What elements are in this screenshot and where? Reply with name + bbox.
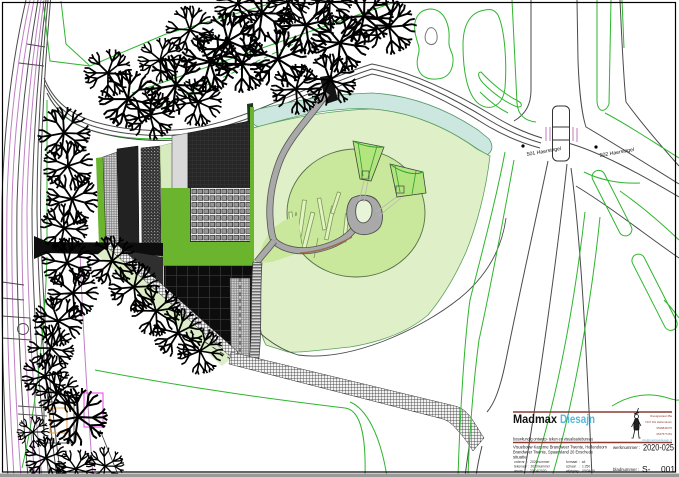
svg-text:ordernr : 2020nummer: ordernr : 2020nummer <box>514 460 550 464</box>
svg-text:formaat : a4: formaat : a4 <box>566 460 586 464</box>
svg-text:situatie: situatie <box>513 455 527 460</box>
svg-text:7447 DG Hellendoorn: 7447 DG Hellendoorn <box>645 420 672 424</box>
svg-text:info@madmaxdiesajn.nl: info@madmaxdiesajn.nl <box>642 438 672 442</box>
svg-text:Diesajn: Diesajn <box>560 412 595 426</box>
svg-text:tekenaar : 2020nummer: tekenaar : 2020nummer <box>514 465 551 469</box>
svg-text:0647577251: 0647577251 <box>656 432 672 436</box>
svg-text:bladnummer :: bladnummer : <box>613 467 639 472</box>
svg-text:werknummer :: werknummer : <box>613 445 640 450</box>
svg-text:0548834075: 0548834075 <box>656 426 672 430</box>
svg-text:bouwkundig ontwerp- teken en v: bouwkundig ontwerp- teken en visualisati… <box>513 437 594 442</box>
svg-text:2020-025: 2020-025 <box>643 443 674 453</box>
svg-text:schaal : 1:250: schaal : 1:250 <box>566 465 590 469</box>
svg-text:Madmax: Madmax <box>513 412 557 426</box>
svg-text:Diesajnstraat 35a: Diesajnstraat 35a <box>650 414 672 418</box>
